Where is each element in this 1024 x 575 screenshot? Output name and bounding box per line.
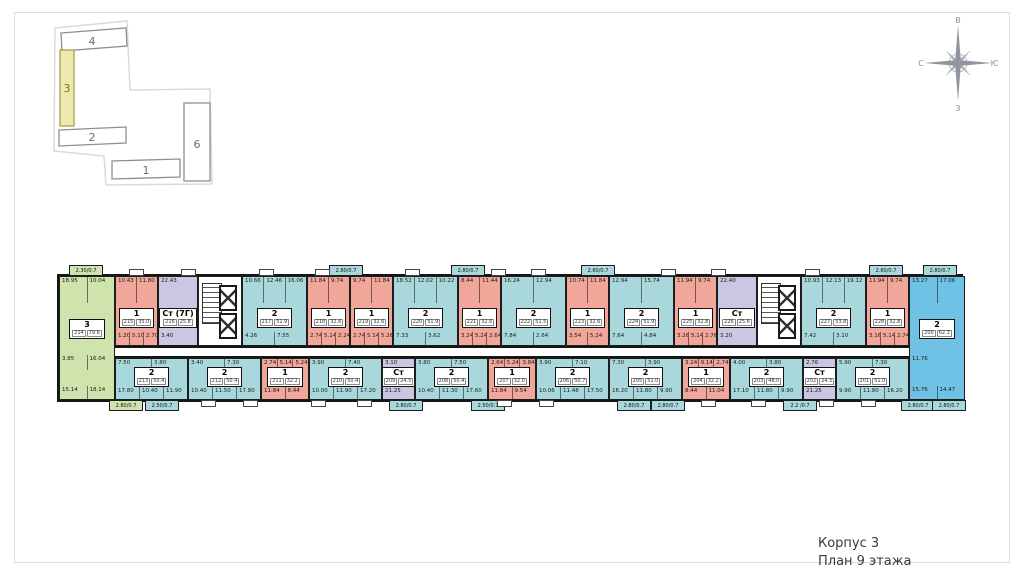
unit-number-area: 21625.8 bbox=[162, 319, 193, 326]
small-balcony bbox=[539, 400, 554, 407]
unit-number-area: 22532.8 bbox=[681, 319, 711, 326]
small-balcony bbox=[357, 400, 372, 407]
room-areas: 2.645.243.84 bbox=[489, 359, 535, 367]
room-area: 12.02 bbox=[414, 277, 435, 303]
unit-number: 203 bbox=[752, 378, 766, 385]
unit-label: 122832.8 bbox=[870, 308, 906, 328]
room-areas: 11.849.54 bbox=[489, 387, 535, 400]
unit-number-area: 20850.4 bbox=[437, 378, 467, 385]
unit-number: 206 bbox=[558, 378, 572, 385]
room-area: 5.24 bbox=[504, 359, 520, 367]
apartment-unit[interactable]: 11.849.74121832.62.745.142.24 bbox=[307, 276, 350, 346]
unit-type: 2 bbox=[437, 369, 467, 377]
room-areas: 3.20 bbox=[718, 332, 756, 345]
room-area: 7.50 bbox=[451, 359, 487, 367]
unit-area: 32.6 bbox=[328, 319, 343, 326]
floor-plan: 18.9510.04321479.63.8516.0415.1418.1413.… bbox=[57, 274, 963, 402]
unit-number: 227 bbox=[819, 319, 833, 326]
room-areas: 3.8516.04 bbox=[60, 355, 114, 370]
apartment-unit[interactable]: 22.43Ст (7Г)21625.83.40 bbox=[158, 276, 198, 346]
room-area: 21.25 bbox=[383, 387, 414, 400]
unit-number: 214 bbox=[72, 330, 86, 337]
unit-type: Ст bbox=[722, 310, 752, 318]
room-areas: 3.907.40 bbox=[310, 359, 381, 367]
room-area: 16.20 bbox=[610, 387, 633, 400]
site-building-2[interactable]: 2 bbox=[59, 127, 126, 146]
room-area: 3.26 bbox=[675, 332, 688, 345]
unit-area: 51.0 bbox=[872, 378, 887, 385]
unit-number-area: 20432.2 bbox=[691, 378, 721, 385]
room-area: 2.74 bbox=[262, 359, 277, 367]
unit-label: 120732.0 bbox=[494, 367, 530, 387]
room-area: 17.80 bbox=[236, 387, 260, 400]
room-area: 10.74 bbox=[567, 277, 587, 303]
apartment-unit[interactable]: 8.4411.44122132.63.245.242.64 bbox=[458, 276, 501, 346]
room-areas: 22.40 bbox=[718, 277, 756, 303]
room-areas: 10.4311.80 bbox=[116, 277, 157, 303]
unit-type: 2 bbox=[331, 369, 361, 377]
apartment-unit[interactable]: 12.9415.74222451.97.644.84 bbox=[609, 276, 674, 346]
room-areas: 16.2412.94 bbox=[502, 277, 565, 303]
site-key-plan: 4 3 2 1 6 bbox=[40, 18, 240, 190]
unit-type: 2 bbox=[210, 369, 240, 377]
apartment-unit[interactable]: 10.9312.1319.12222753.87.423.10 bbox=[801, 276, 866, 346]
balcony-tab: 2.80/0.7 bbox=[329, 265, 363, 276]
site-building-3[interactable]: 3 bbox=[60, 50, 74, 126]
unit-label: 122132.6 bbox=[462, 308, 498, 328]
room-area: 4.84 bbox=[641, 332, 673, 345]
balcony-area: 2.80/0.7 bbox=[658, 403, 679, 409]
room-areas: 1.205.102.70 bbox=[116, 332, 157, 345]
balcony-area: 2.80/0.7 bbox=[396, 403, 417, 409]
room-areas: 2.76 bbox=[804, 359, 835, 367]
unit-number-area: 21535.0 bbox=[122, 319, 152, 326]
unit-label: 121132.2 bbox=[267, 367, 303, 387]
room-area: 18.95 bbox=[60, 277, 87, 303]
unit-area: 32.2 bbox=[706, 378, 721, 385]
room-area: 9.90 bbox=[778, 387, 802, 400]
elevator-icon bbox=[219, 313, 237, 339]
small-balcony bbox=[861, 400, 876, 407]
apartment-unit[interactable]: 13.2717.06220062.311.7615.7614.47 bbox=[909, 276, 965, 400]
unit-number: 204 bbox=[691, 378, 705, 385]
unit-number-area: 22251.5 bbox=[519, 319, 549, 326]
unit-number: 201 bbox=[858, 378, 872, 385]
apartment-unit[interactable]: 3.249.142.74120432.28.4411.04 bbox=[682, 358, 730, 400]
room-area: 7.30 bbox=[610, 359, 645, 367]
room-area: 11.04 bbox=[706, 387, 730, 400]
apartment-unit[interactable]: 3.907.40221050.410.0011.9017.20 bbox=[309, 358, 382, 400]
room-area: 7.64 bbox=[610, 332, 641, 345]
room-area: 7.40 bbox=[345, 359, 381, 367]
room-area: 7.30 bbox=[224, 359, 260, 367]
room-areas: 15.1418.14 bbox=[60, 386, 114, 399]
unit-label: 121832.6 bbox=[311, 308, 347, 328]
apartment-unit[interactable]: 11.949.74122532.83.265.142.76 bbox=[674, 276, 717, 346]
apartment-unit[interactable]: 3.807.50220850.410.4011.3017.60 bbox=[415, 358, 488, 400]
room-area: 12.46 bbox=[263, 277, 284, 303]
small-balcony bbox=[805, 269, 820, 276]
room-area: 5.24 bbox=[472, 332, 486, 345]
apartment-unit[interactable]: 10.4311.80121535.01.205.102.70 bbox=[115, 276, 158, 346]
unit-number-area: 20348.0 bbox=[752, 378, 782, 385]
room-area: 12.94 bbox=[533, 277, 565, 303]
unit-label: 222051.9 bbox=[408, 308, 444, 328]
unit-area: 51.9 bbox=[425, 319, 440, 326]
balcony-tab: 2.80/0.7 bbox=[451, 265, 485, 276]
stair-core bbox=[198, 276, 242, 346]
unit-type: 2 bbox=[752, 369, 782, 377]
site-building-6[interactable]: 6 bbox=[184, 103, 210, 181]
room-area: 22.43 bbox=[159, 277, 197, 303]
room-area: 10.06 bbox=[537, 387, 560, 400]
small-balcony bbox=[311, 400, 326, 407]
room-area: 16.20 bbox=[884, 387, 908, 400]
unit-label: 221250.4 bbox=[207, 367, 243, 387]
apartment-unit[interactable]: 18.9510.04321479.63.8516.0415.1418.14 bbox=[59, 276, 115, 400]
apartment-unit[interactable]: 2.645.243.84120732.011.849.54 bbox=[488, 358, 536, 400]
room-area: 11.84 bbox=[371, 277, 392, 303]
unit-type: Ст (7Г) bbox=[162, 310, 193, 318]
stair-core bbox=[757, 276, 801, 346]
room-areas: 10.7411.84 bbox=[567, 277, 608, 303]
room-area: 9.74 bbox=[328, 277, 349, 303]
unit-number: 208 bbox=[437, 378, 451, 385]
apartment-unit[interactable]: 10.7411.84122332.63.545.24 bbox=[566, 276, 609, 346]
unit-label: 220062.3 bbox=[919, 319, 955, 339]
room-area: 3.54 bbox=[567, 332, 587, 345]
room-areas: 10.4011.3017.60 bbox=[416, 387, 487, 400]
unit-area: 32.6 bbox=[587, 319, 602, 326]
unit-number: 219 bbox=[357, 319, 371, 326]
room-area: 3.10 bbox=[383, 359, 414, 367]
unit-type: 1 bbox=[681, 310, 711, 318]
room-area: 11.94 bbox=[867, 277, 887, 303]
unit-number-area: 20551.0 bbox=[631, 378, 661, 385]
apartment-unit[interactable]: 3.407.30221250.410.4011.5017.80 bbox=[188, 358, 261, 400]
apartment-unit[interactable]: 4.003.80220348.017.1011.809.90 bbox=[730, 358, 803, 400]
room-area: 5.14 bbox=[688, 332, 702, 345]
room-area: 4.26 bbox=[243, 332, 274, 345]
room-areas: 9.7411.84 bbox=[351, 277, 392, 303]
apartment-unit[interactable]: 18.5212.0210.22222051.97.333.62 bbox=[393, 276, 458, 346]
room-area: 9.54 bbox=[512, 387, 536, 400]
room-area: 17.80 bbox=[116, 387, 139, 400]
room-areas: 3.407.30 bbox=[189, 359, 260, 367]
balcony-area: 2.80/0.7 bbox=[116, 403, 137, 409]
unit-number: 215 bbox=[122, 319, 136, 326]
room-area: 3.90 bbox=[310, 359, 345, 367]
unit-label: 222451.9 bbox=[624, 308, 660, 328]
room-area: 2.74 bbox=[351, 332, 364, 345]
elevator-icon bbox=[219, 285, 237, 311]
unit-area: 53.8 bbox=[833, 319, 848, 326]
room-area: 11.80 bbox=[633, 387, 657, 400]
balcony-area: 2.50/0.7 bbox=[152, 403, 173, 409]
unit-number: 217 bbox=[260, 319, 274, 326]
room-area: 19.12 bbox=[844, 277, 865, 303]
unit-area: 32.8 bbox=[887, 319, 902, 326]
room-areas: 3.40 bbox=[159, 332, 197, 345]
room-area: 2.64 bbox=[533, 332, 565, 345]
small-balcony bbox=[259, 269, 274, 276]
compass-label-west: З bbox=[955, 104, 960, 112]
balcony-tab: 2.2 /0.7 bbox=[783, 400, 817, 411]
caption-floor: План 9 этажа bbox=[818, 554, 911, 569]
small-balcony bbox=[661, 269, 676, 276]
compass-rose: В Ю З С bbox=[918, 16, 998, 112]
unit-type: 2 bbox=[411, 310, 441, 318]
room-areas: 18.9510.04 bbox=[60, 277, 114, 303]
unit-area: 50.4 bbox=[451, 378, 466, 385]
room-areas: 17.1011.809.90 bbox=[731, 387, 802, 400]
room-areas: 10.9312.1319.12 bbox=[802, 277, 865, 303]
unit-label: 220650.7 bbox=[555, 367, 591, 387]
apartment-unit[interactable]: 2.76Ст20224.521.25 bbox=[803, 358, 836, 400]
corridor bbox=[115, 346, 909, 358]
room-area: 11.50 bbox=[212, 387, 236, 400]
unit-number: 207 bbox=[497, 378, 511, 385]
room-areas: 12.9415.74 bbox=[610, 277, 673, 303]
unit-label: 220850.4 bbox=[434, 367, 470, 387]
room-areas: 10.0611.4817.50 bbox=[537, 387, 608, 400]
room-areas: 5.907.30 bbox=[837, 359, 908, 367]
unit-label: Ст20224.5 bbox=[803, 367, 836, 387]
room-area: 5.90 bbox=[837, 359, 872, 367]
unit-number: 223 bbox=[573, 319, 587, 326]
compass-label-south: Ю bbox=[991, 59, 998, 68]
unit-type: 1 bbox=[573, 310, 603, 318]
room-area: 17.20 bbox=[357, 387, 381, 400]
unit-area: 32.6 bbox=[371, 319, 386, 326]
balcony-area: 2.80/0.7 bbox=[458, 268, 479, 274]
room-areas: 15.7614.47 bbox=[910, 386, 964, 399]
unit-type: Ст bbox=[384, 369, 414, 377]
room-area: 15.14 bbox=[60, 386, 87, 399]
small-balcony bbox=[315, 269, 330, 276]
unit-label: 122332.6 bbox=[570, 308, 606, 328]
room-area: 3.16 bbox=[867, 332, 880, 345]
room-area: 11.30 bbox=[439, 387, 463, 400]
room-area: 16.04 bbox=[87, 355, 115, 370]
room-area: 1.20 bbox=[116, 332, 129, 345]
room-area: 10.93 bbox=[802, 277, 822, 303]
room-area: 4.00 bbox=[731, 359, 766, 367]
apartment-unit[interactable]: 7.503.80221350.417.8010.4011.90 bbox=[115, 358, 188, 400]
apartment-unit[interactable]: 16.2412.94222251.57.842.64 bbox=[501, 276, 566, 346]
room-area: 3.80 bbox=[766, 359, 802, 367]
room-area: 9.74 bbox=[351, 277, 371, 303]
unit-number-area: 20224.5 bbox=[805, 378, 835, 385]
room-area: 14.47 bbox=[937, 386, 965, 399]
unit-type: 2 bbox=[631, 369, 661, 377]
unit-label: 121535.0 bbox=[119, 308, 155, 328]
building-label: 1 bbox=[143, 164, 150, 177]
room-area: 9.90 bbox=[657, 387, 681, 400]
apartment-unit[interactable]: 11.949.74122832.83.165.142.74 bbox=[866, 276, 909, 346]
balcony-area: 2.80/0.7 bbox=[624, 403, 645, 409]
unit-area: 24.5 bbox=[398, 378, 413, 385]
room-area: 11.80 bbox=[860, 387, 884, 400]
balcony-tab: 2.80/0.7 bbox=[932, 400, 966, 411]
room-area: 11.84 bbox=[308, 277, 328, 303]
room-areas: 7.503.80 bbox=[116, 359, 187, 367]
room-area: 15.76 bbox=[910, 386, 937, 399]
unit-label: 120432.2 bbox=[688, 367, 724, 387]
room-areas: 3.265.142.76 bbox=[675, 332, 716, 345]
room-area: 17.10 bbox=[731, 387, 754, 400]
unit-type: 3 bbox=[72, 321, 102, 329]
room-area: 3.80 bbox=[416, 359, 451, 367]
room-area: 5.24 bbox=[587, 332, 608, 345]
room-area: 7.33 bbox=[394, 332, 425, 345]
room-areas: 22.43 bbox=[159, 277, 197, 303]
room-area: 5.10 bbox=[129, 332, 143, 345]
unit-label: Ст (7Г)21625.8 bbox=[159, 308, 196, 328]
apartment-unit[interactable]: 9.7411.84121932.62.745.145.26 bbox=[350, 276, 393, 346]
unit-area: 50.7 bbox=[572, 378, 587, 385]
unit-number: 226 bbox=[722, 319, 736, 326]
compass-label-east: В bbox=[955, 16, 961, 25]
unit-label: 220551.0 bbox=[628, 367, 664, 387]
unit-type: 1 bbox=[691, 369, 721, 377]
apartment-unit[interactable]: 22.40Ст22625.63.20 bbox=[717, 276, 757, 346]
room-area: 12.94 bbox=[610, 277, 641, 303]
unit-number-area: 21132.2 bbox=[270, 378, 300, 385]
room-area: 7.84 bbox=[502, 332, 533, 345]
apartment-unit[interactable]: 5.907.30220151.09.9011.8016.20 bbox=[836, 358, 909, 400]
unit-number: 216 bbox=[163, 319, 177, 326]
unit-type: 2 bbox=[558, 369, 588, 377]
unit-number: 209 bbox=[384, 378, 398, 385]
room-area: 9.14 bbox=[698, 359, 714, 367]
unit-number-area: 22625.6 bbox=[722, 319, 752, 326]
unit-area: 32.0 bbox=[512, 378, 527, 385]
room-area: 15.74 bbox=[641, 277, 673, 303]
apartment-unit[interactable]: 3.907.10220650.710.0611.4817.50 bbox=[536, 358, 609, 400]
room-areas: 7.333.62 bbox=[394, 332, 457, 345]
unit-area: 25.8 bbox=[178, 319, 193, 326]
room-area: 16.06 bbox=[285, 277, 306, 303]
room-areas: 2.745.145.24 bbox=[262, 359, 308, 367]
unit-label: 121932.6 bbox=[354, 308, 390, 328]
room-area: 5.14 bbox=[321, 332, 335, 345]
unit-number: 210 bbox=[331, 378, 345, 385]
unit-number-area: 20924.5 bbox=[384, 378, 414, 385]
unit-label: 220151.0 bbox=[855, 367, 891, 387]
room-areas: 11.949.74 bbox=[867, 277, 908, 303]
room-area: 11.80 bbox=[754, 387, 778, 400]
room-area: 3.10 bbox=[833, 332, 865, 345]
unit-number: 224 bbox=[627, 319, 641, 326]
room-areas: 11.849.74 bbox=[308, 277, 349, 303]
balcony-area: 2.80/0.7 bbox=[908, 403, 929, 409]
balcony-tab: 2.80/0.7 bbox=[651, 400, 685, 411]
balcony-tab: 2.80/0.7 bbox=[389, 400, 423, 411]
unit-area: 35.0 bbox=[136, 319, 151, 326]
unit-number-area: 22753.8 bbox=[819, 319, 849, 326]
room-area: 2.24 bbox=[335, 332, 349, 345]
apartment-unit[interactable]: 10.6612.4616.06221751.94.267.55 bbox=[242, 276, 307, 346]
balcony-area: 2.80/0.7 bbox=[939, 403, 960, 409]
small-balcony bbox=[531, 269, 546, 276]
room-areas: 11.848.44 bbox=[262, 387, 308, 400]
unit-number-area: 21751.9 bbox=[260, 319, 290, 326]
room-area: 11.48 bbox=[560, 387, 584, 400]
room-area: 7.10 bbox=[572, 359, 608, 367]
balcony-tab: 2.80/0.7 bbox=[923, 265, 957, 276]
room-area: 11.94 bbox=[675, 277, 695, 303]
room-areas: 18.5212.0210.22 bbox=[394, 277, 457, 303]
room-areas: 21.25 bbox=[804, 387, 835, 400]
room-area: 8.44 bbox=[285, 387, 309, 400]
unit-number: 225 bbox=[681, 319, 695, 326]
room-area: 2.64 bbox=[489, 359, 504, 367]
unit-number-area: 20062.3 bbox=[922, 330, 952, 337]
room-area: 3.84 bbox=[519, 359, 535, 367]
room-area: 16.24 bbox=[502, 277, 533, 303]
apartment-unit[interactable]: 7.303.90220551.016.2011.809.90 bbox=[609, 358, 682, 400]
unit-number-area: 21250.4 bbox=[210, 378, 240, 385]
room-area: 5.26 bbox=[378, 332, 392, 345]
room-areas: 3.907.10 bbox=[537, 359, 608, 367]
room-areas: 8.4411.44 bbox=[459, 277, 500, 303]
site-building-1[interactable]: 1 bbox=[112, 159, 180, 179]
room-area: 3.24 bbox=[683, 359, 698, 367]
room-areas: 3.807.50 bbox=[416, 359, 487, 367]
balcony-tab: 2.50/0.7 bbox=[145, 400, 179, 411]
unit-number: 221 bbox=[465, 319, 479, 326]
elevator-icon bbox=[778, 285, 796, 311]
room-areas: 3.10 bbox=[383, 359, 414, 367]
balcony-tab: 2.80/0.7 bbox=[901, 400, 935, 411]
unit-label: 222251.5 bbox=[516, 308, 552, 328]
room-area: 3.62 bbox=[425, 332, 457, 345]
caption-building: Корпус 3 bbox=[818, 536, 879, 551]
room-area: 7.42 bbox=[802, 332, 833, 345]
unit-number-area: 21479.6 bbox=[72, 330, 102, 337]
room-area: 11.84 bbox=[587, 277, 608, 303]
unit-area: 51.0 bbox=[645, 378, 660, 385]
room-area: 11.90 bbox=[163, 387, 187, 400]
unit-area: 32.6 bbox=[479, 319, 494, 326]
apartment-unit[interactable]: 2.745.145.24121132.211.848.44 bbox=[261, 358, 309, 400]
small-balcony bbox=[129, 269, 144, 276]
small-balcony bbox=[201, 400, 216, 407]
compass-label-north: С bbox=[918, 59, 924, 68]
room-area: 13.27 bbox=[910, 277, 937, 303]
unit-area: 51.5 bbox=[533, 319, 548, 326]
elevator-icon bbox=[778, 313, 796, 339]
apartment-unit[interactable]: 3.10Ст20924.521.25 bbox=[382, 358, 415, 400]
small-balcony bbox=[491, 269, 506, 276]
room-area: 18.14 bbox=[87, 386, 115, 399]
room-area: 9.74 bbox=[887, 277, 908, 303]
small-balcony bbox=[819, 400, 834, 407]
unit-type: 1 bbox=[465, 310, 495, 318]
balcony-area: 2.50/0.7 bbox=[478, 403, 499, 409]
room-area: 5.14 bbox=[364, 332, 378, 345]
room-area: 10.40 bbox=[139, 387, 163, 400]
room-areas: 16.2011.809.90 bbox=[610, 387, 681, 400]
room-area: 18.52 bbox=[394, 277, 414, 303]
unit-type: 2 bbox=[260, 310, 290, 318]
balcony-tab: 2.80/0.7 bbox=[617, 400, 651, 411]
unit-type: 1 bbox=[270, 369, 300, 377]
site-building-4[interactable]: 4 bbox=[61, 28, 127, 51]
room-area: 11.84 bbox=[262, 387, 285, 400]
balcony-area: 2.30/0.7 bbox=[76, 268, 97, 274]
